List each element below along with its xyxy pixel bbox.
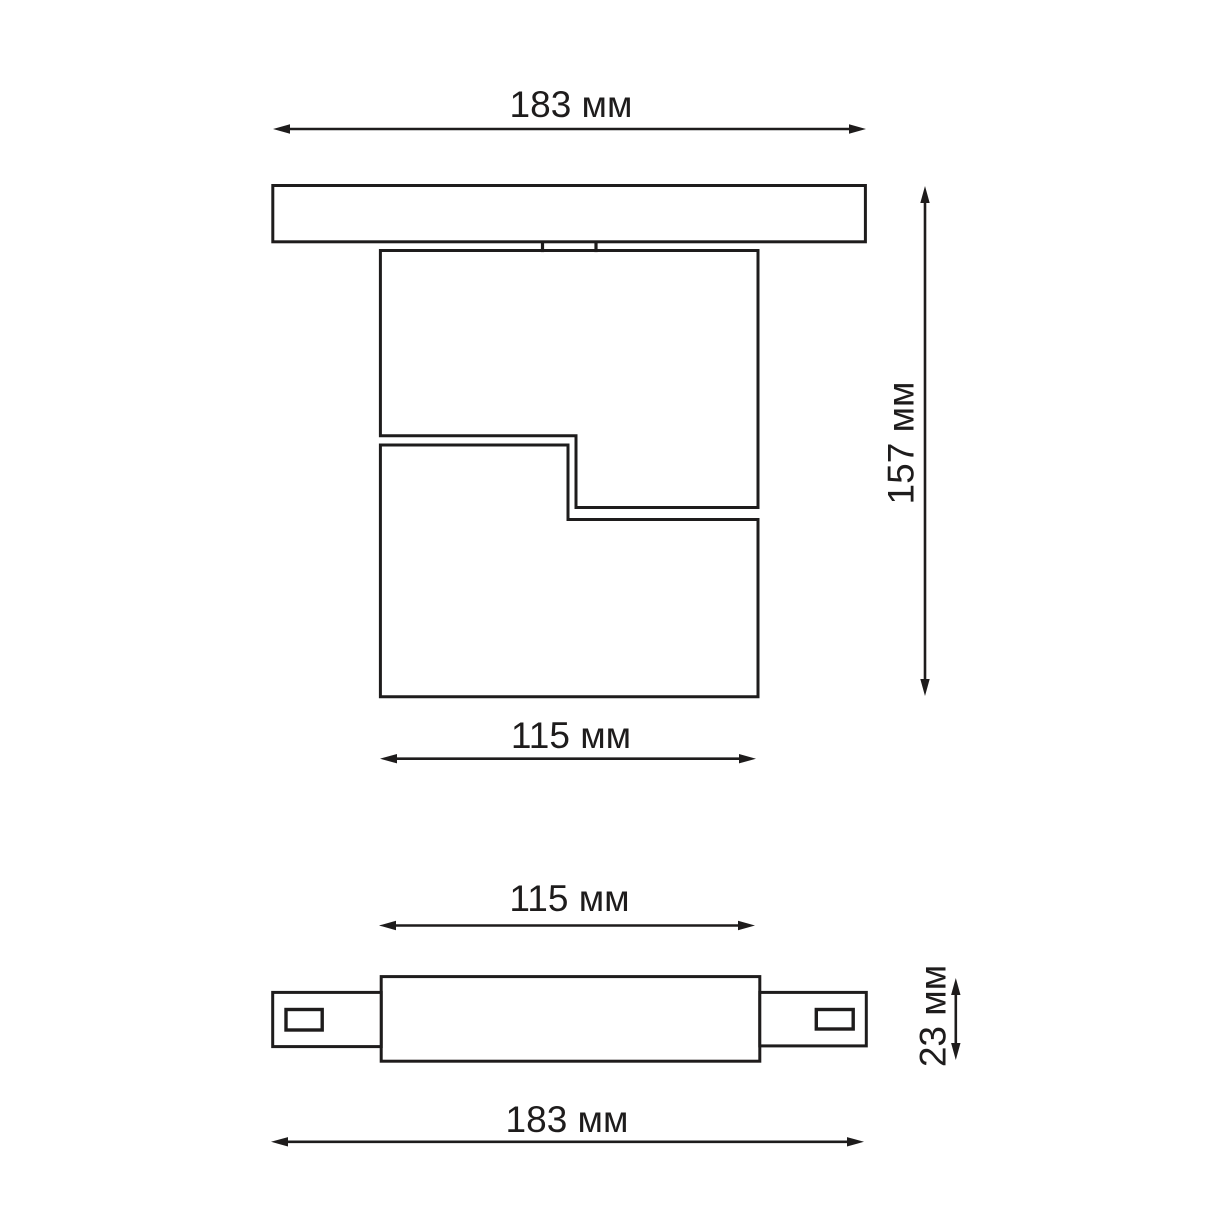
svg-text:23 мм: 23 мм	[913, 965, 954, 1067]
svg-text:183 мм: 183 мм	[506, 1099, 629, 1140]
svg-text:183 мм: 183 мм	[510, 84, 633, 125]
svg-text:115 мм: 115 мм	[511, 715, 631, 756]
svg-text:157 мм: 157 мм	[881, 382, 922, 505]
svg-text:115 мм: 115 мм	[509, 878, 629, 919]
